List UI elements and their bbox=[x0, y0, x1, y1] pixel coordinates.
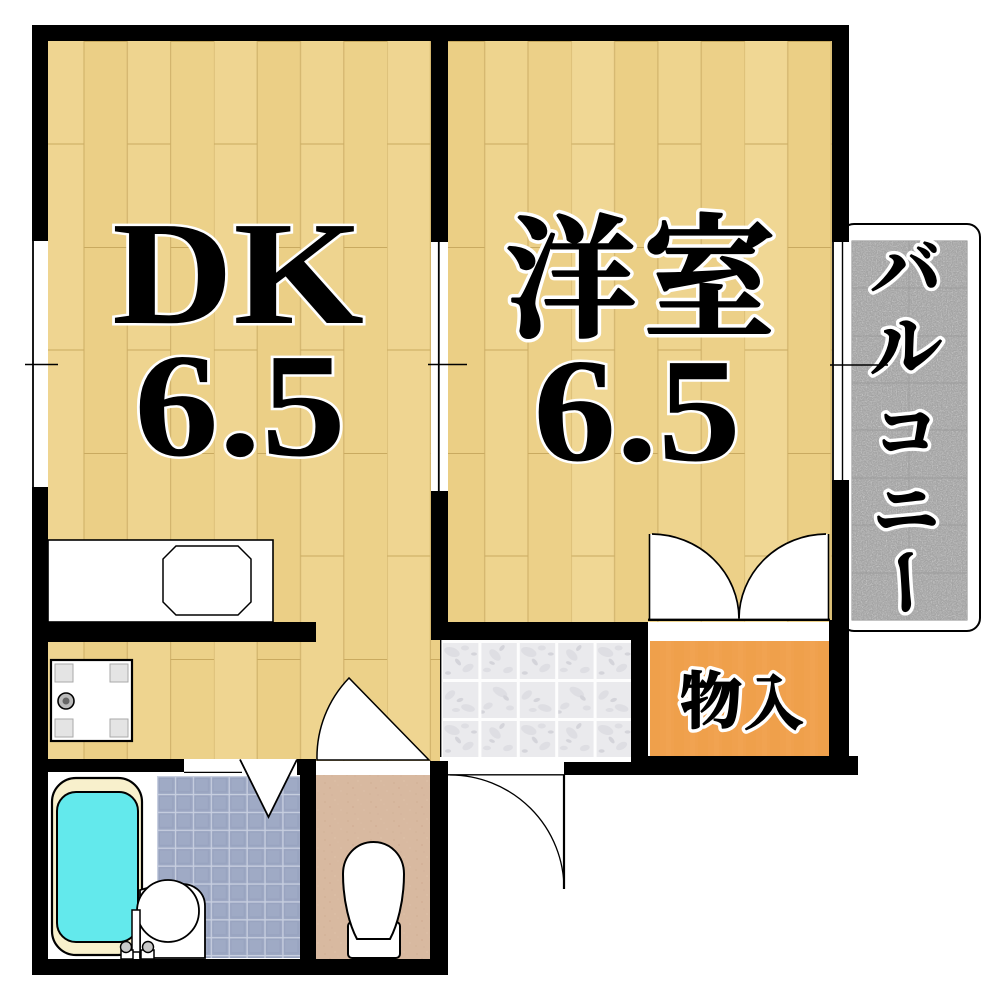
svg-text:6.5: 6.5 bbox=[533, 329, 741, 493]
svg-text:6.5: 6.5 bbox=[134, 324, 346, 488]
